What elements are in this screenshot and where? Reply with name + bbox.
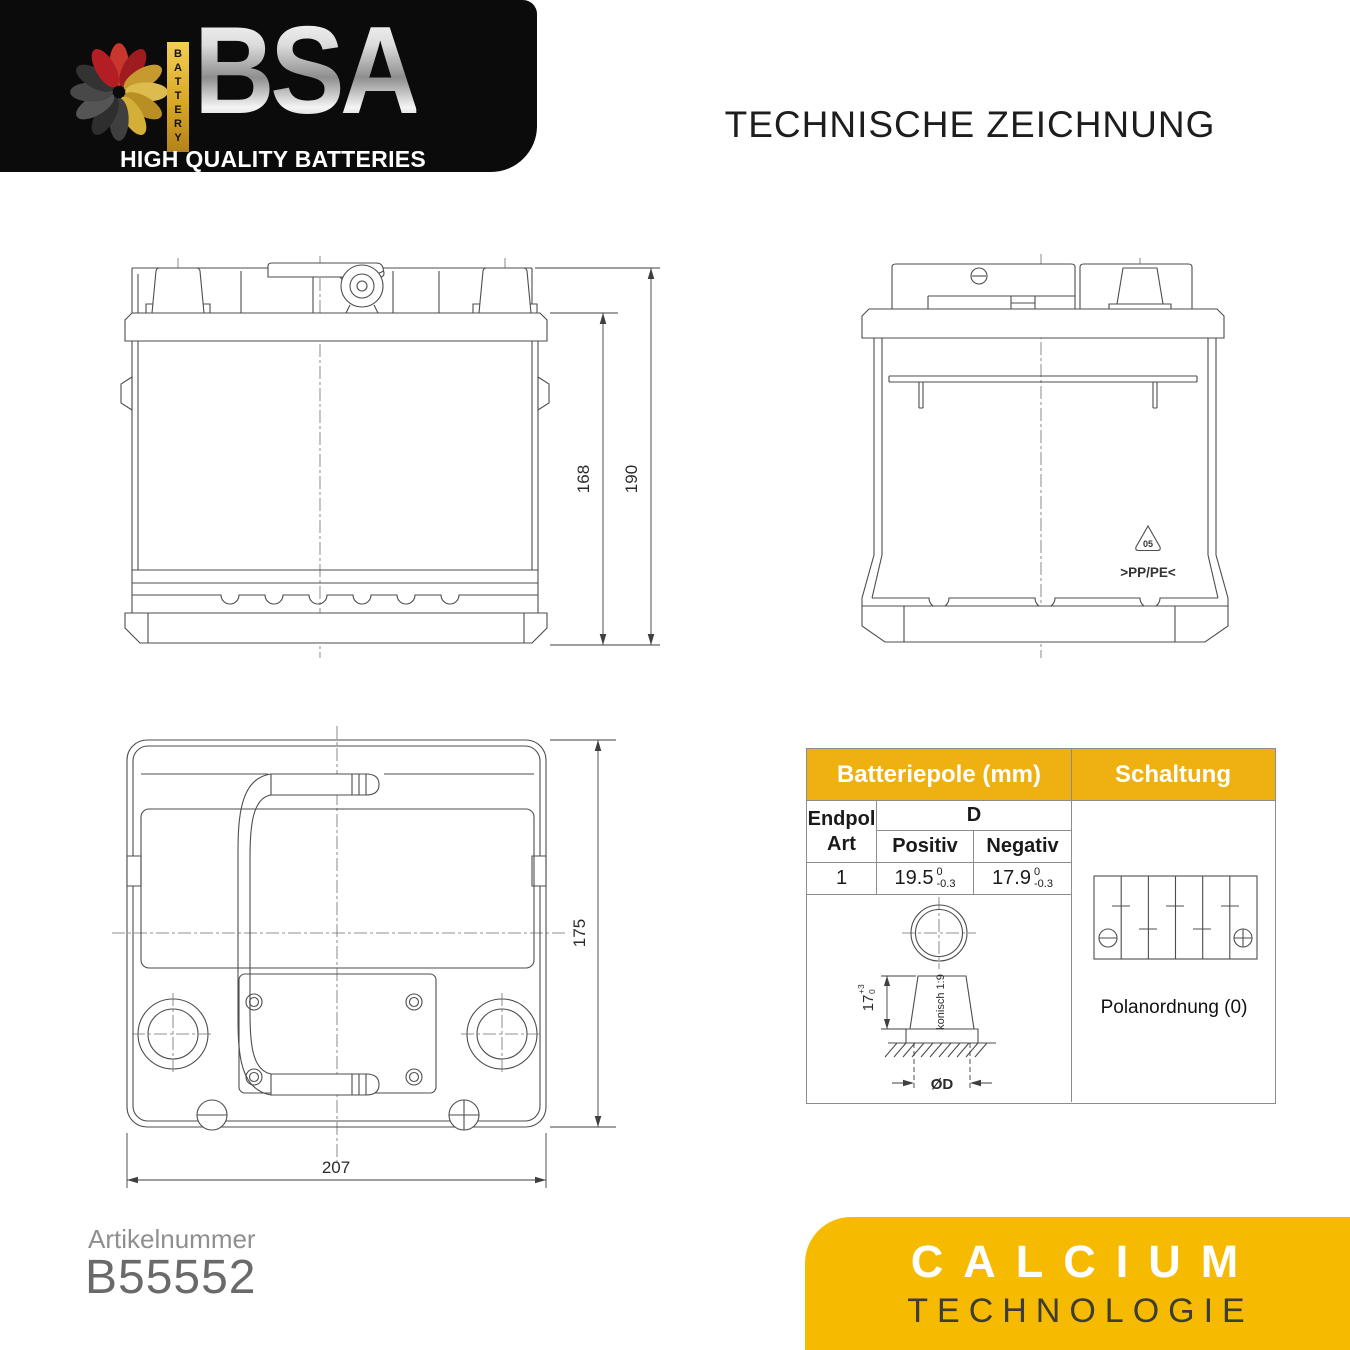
technology-line2: TECHNOLOGIE xyxy=(805,1292,1350,1331)
brand-acronym: BSA xyxy=(194,6,416,136)
material-label: >PP/PE< xyxy=(1120,565,1176,580)
endpol-line1: Endpol xyxy=(808,807,876,832)
svg-text:0: 0 xyxy=(867,989,877,994)
front-view-drawing: 168 190 xyxy=(100,246,660,666)
header-batteriepole: Batteriepole (mm) xyxy=(807,749,1071,801)
diameter-label: ØD xyxy=(931,1076,954,1093)
technology-banner: CALCIUM TECHNOLOGIE xyxy=(805,1217,1350,1350)
dim-190-label: 190 xyxy=(622,465,641,493)
top-view-drawing: 175 207 xyxy=(100,718,660,1188)
cell-negativ-value: 17.9 0 -0.3 xyxy=(974,863,1071,895)
side-view-drawing: 05 >PP/PE< xyxy=(853,246,1293,666)
positiv-tol-top: 0 xyxy=(936,867,942,879)
positiv-tol-bottom: -0.3 xyxy=(936,879,955,891)
pole-detail-drawing: 17 +3 0 konisch 1:9 ØD xyxy=(807,895,1071,1105)
recycling-code-label: 05 xyxy=(1143,539,1153,549)
technology-line1: CALCIUM xyxy=(805,1236,1350,1288)
positiv-tolerance: 0 -0.3 xyxy=(936,867,955,890)
dim-207-label: 207 xyxy=(322,1158,350,1177)
cell-d: D xyxy=(877,801,1071,831)
dim-168-label: 168 xyxy=(574,465,593,493)
page-title: TECHNISCHE ZEICHNUNG xyxy=(690,104,1250,146)
page: BATTERY BSA HIGH QUALITY BATTERIES TECHN… xyxy=(0,0,1350,1350)
positiv-value: 19.5 xyxy=(895,867,934,890)
svg-text:+3: +3 xyxy=(856,984,866,994)
cell-endpol-art: Endpol Art xyxy=(807,801,877,863)
cell-positiv: Positiv xyxy=(877,831,974,863)
cell-positiv-value: 19.5 0 -0.3 xyxy=(877,863,974,895)
article-number-value: B55552 xyxy=(85,1250,257,1305)
dim-175-label: 175 xyxy=(570,919,589,947)
flower-logo-icon xyxy=(63,36,175,148)
brand-tagline: HIGH QUALITY BATTERIES xyxy=(120,146,420,173)
negativ-tolerance: 0 -0.3 xyxy=(1034,867,1053,890)
negativ-tol-top: 0 xyxy=(1034,867,1040,879)
header-schaltung: Schaltung xyxy=(1071,749,1275,801)
battery-vertical-label: BATTERY xyxy=(167,42,189,152)
polarity-diagram xyxy=(1071,801,1277,971)
taper-label: konisch 1:9 xyxy=(935,974,947,1030)
endpol-line2: Art xyxy=(827,832,856,857)
svg-text:17: 17 xyxy=(860,995,877,1012)
negativ-tol-bottom: -0.3 xyxy=(1034,879,1053,891)
cell-negativ: Negativ xyxy=(974,831,1071,863)
battery-vertical-label-text: BATTERY xyxy=(172,48,184,146)
polarity-caption: Polanordnung (0) xyxy=(1071,997,1277,1019)
negativ-value: 17.9 xyxy=(992,867,1031,890)
brand-logo: BATTERY BSA HIGH QUALITY BATTERIES xyxy=(0,0,537,172)
cell-endpol-value: 1 xyxy=(807,863,877,895)
pole-table: Batteriepole (mm) Schaltung Endpol Art D… xyxy=(806,748,1276,1104)
cone-height-dim-label: 17 +3 0 xyxy=(856,984,877,1011)
